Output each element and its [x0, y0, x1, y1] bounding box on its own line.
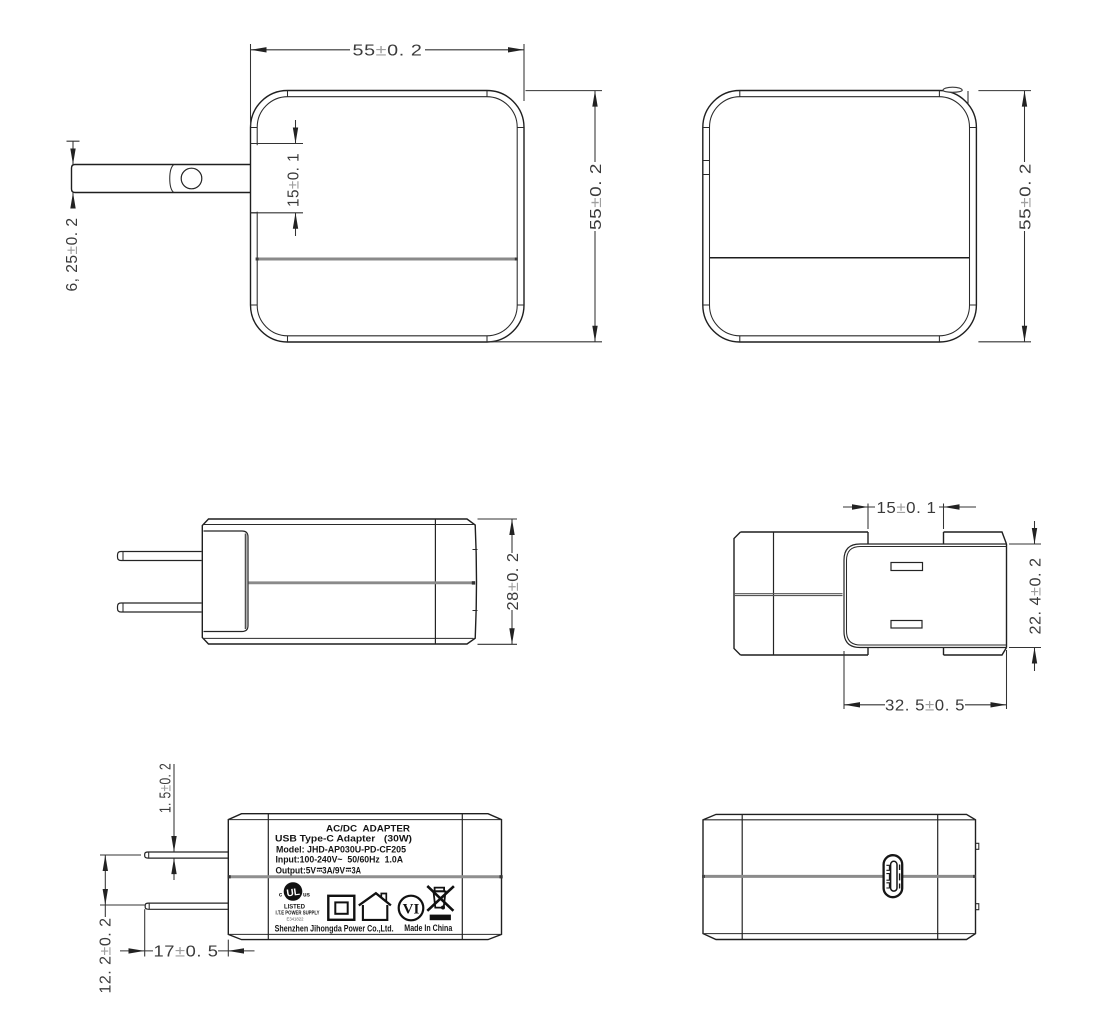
svg-text:55±0. 2: 55±0. 2	[588, 163, 605, 230]
svg-text:22. 4±0. 2: 22. 4±0. 2	[1027, 558, 1044, 635]
svg-text:3A: 3A	[352, 865, 362, 875]
svg-text:17±0. 5: 17±0. 5	[154, 944, 219, 961]
svg-text:32. 5±0. 5: 32. 5±0. 5	[885, 698, 965, 715]
svg-text:Output:5V: Output:5V	[276, 865, 317, 875]
svg-text:55±0. 2: 55±0. 2	[1017, 163, 1034, 230]
svg-text:28±0. 2: 28±0. 2	[505, 553, 522, 611]
svg-text:c: c	[279, 893, 283, 899]
svg-text:6, 25±0. 2: 6, 25±0. 2	[64, 218, 81, 292]
svg-text:15±0. 1: 15±0. 1	[285, 153, 302, 207]
svg-text:USB Type-C Adapter (30W): USB Type-C Adapter (30W)	[275, 833, 412, 844]
svg-text:3A/9V: 3A/9V	[322, 865, 345, 875]
svg-text:55±0. 2: 55±0. 2	[353, 43, 423, 60]
svg-text:Shenzhen Jihongda Power Co.,Lt: Shenzhen Jihongda Power Co.,Ltd.	[275, 924, 394, 934]
svg-text:UL: UL	[286, 887, 301, 900]
svg-text:1. 5±0. 2: 1. 5±0. 2	[158, 763, 175, 813]
svg-text:15±0. 1: 15±0. 1	[877, 500, 937, 517]
svg-text:VI: VI	[403, 902, 420, 918]
svg-text:Model: JHD-AP030U-PD-CF205: Model: JHD-AP030U-PD-CF205	[276, 844, 406, 854]
svg-text:Made In China: Made In China	[404, 923, 453, 933]
svg-text:us: us	[303, 893, 311, 899]
svg-text:E341822: E341822	[287, 917, 304, 922]
svg-text:Input:100-240V~ 50/60Hz 1.0A: Input:100-240V~ 50/60Hz 1.0A	[276, 855, 404, 865]
svg-text:LISTED: LISTED	[284, 904, 306, 910]
svg-text:12. 2±0. 2: 12. 2±0. 2	[98, 918, 115, 994]
